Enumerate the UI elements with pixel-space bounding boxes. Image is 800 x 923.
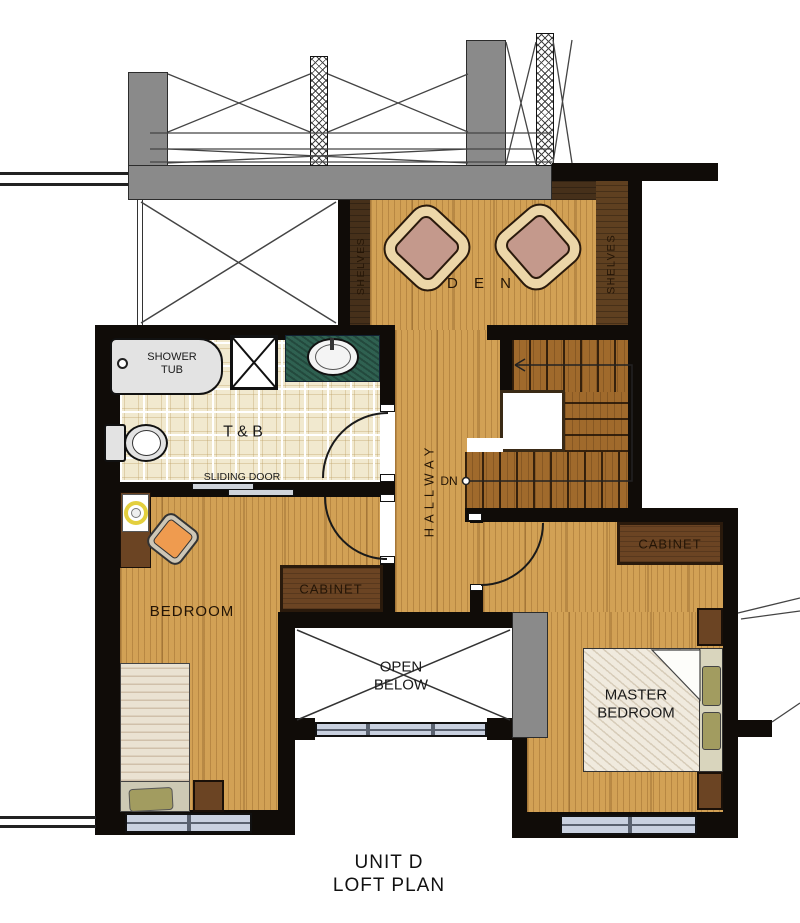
wall <box>487 325 642 340</box>
shelves-label-right: SHELVES <box>606 234 619 294</box>
open-below-railing <box>315 722 487 737</box>
door-jamb <box>380 556 395 564</box>
hallway-label: HALLWAY <box>421 443 436 538</box>
wall-stair-side <box>500 340 512 390</box>
hallway-floor <box>395 330 512 452</box>
wall <box>278 612 295 835</box>
wall <box>380 330 395 410</box>
concrete-pillar <box>466 40 506 168</box>
stairs-down-label: DN <box>440 474 457 488</box>
door-jamb <box>380 474 395 482</box>
stair-flight-right <box>565 392 628 452</box>
shower-tub-label: SHOWER TUB <box>137 351 207 377</box>
bedroom-pillow <box>128 787 173 812</box>
exterior-wall-line <box>0 183 132 186</box>
toilet-tank <box>104 424 126 462</box>
plan-title-unit: UNIT D <box>333 852 445 875</box>
wall <box>465 508 738 522</box>
master-window <box>560 815 697 835</box>
tub-drain <box>117 358 128 369</box>
toilet-bowl-inner <box>132 430 161 456</box>
wall <box>285 612 530 628</box>
door-jamb <box>470 584 483 591</box>
concrete-ledge <box>128 165 552 200</box>
stair-landing-void <box>467 438 503 452</box>
wall <box>295 718 315 740</box>
shelves-label-left: SHELVES <box>355 237 367 295</box>
door-jamb <box>380 494 395 502</box>
wall <box>338 200 350 340</box>
wall <box>95 325 120 835</box>
exterior-wall-line <box>0 816 96 819</box>
master-pillow <box>702 712 721 750</box>
open-below-label: OPEN BELOW <box>361 658 441 693</box>
wall <box>487 718 512 740</box>
room-label-den: D E N <box>447 275 517 293</box>
sliding-door-panel <box>228 489 294 496</box>
sink-faucet <box>330 338 334 350</box>
master-nightstand <box>697 608 723 646</box>
room-label-master-bedroom: MASTER BEDROOM <box>581 686 691 721</box>
bedroom-bed-blanket <box>120 663 190 782</box>
sliding-door-label: SLIDING DOOR <box>204 471 280 483</box>
stair-landing-void <box>500 390 565 452</box>
wall-stub-right <box>738 720 772 737</box>
bedroom-window <box>125 813 252 833</box>
window-mullion <box>127 822 250 824</box>
exterior-wall-line <box>0 825 96 828</box>
plan-title-type: LOFT PLAN <box>333 875 445 898</box>
concrete-block <box>512 612 548 738</box>
wall <box>723 508 738 838</box>
duct-shaft <box>230 335 278 390</box>
railing-rail <box>317 729 485 731</box>
door-jamb <box>380 404 395 412</box>
stool-center <box>131 508 141 518</box>
stair-flight-upper <box>512 340 628 392</box>
window-mullion <box>562 824 695 826</box>
hatched-column <box>310 56 328 166</box>
break-lines <box>738 598 800 722</box>
room-label-bedroom: BEDROOM <box>150 603 235 621</box>
hatched-column <box>536 33 554 166</box>
void-area <box>137 200 143 325</box>
stair-flight-lower <box>465 452 628 508</box>
master-nightstand <box>697 772 723 810</box>
bedroom-nightstand <box>193 780 224 812</box>
plan-title: UNIT D LOFT PLAN <box>333 852 445 898</box>
loft-floor-plan: D E N SHELVES SHELVES SHOWER TUB T & B S… <box>0 0 800 923</box>
exterior-wall-line <box>0 172 132 175</box>
master-pillow <box>702 666 721 706</box>
glazing-braces <box>150 40 572 164</box>
void-cross <box>141 202 336 323</box>
wall <box>512 738 527 838</box>
door-jamb <box>468 513 482 521</box>
toilet-bath-label: T & B <box>223 424 263 443</box>
bedroom-cabinet-label: CABINET <box>299 581 362 596</box>
concrete-pillar <box>128 72 168 168</box>
master-cabinet-label: CABINET <box>638 536 701 551</box>
